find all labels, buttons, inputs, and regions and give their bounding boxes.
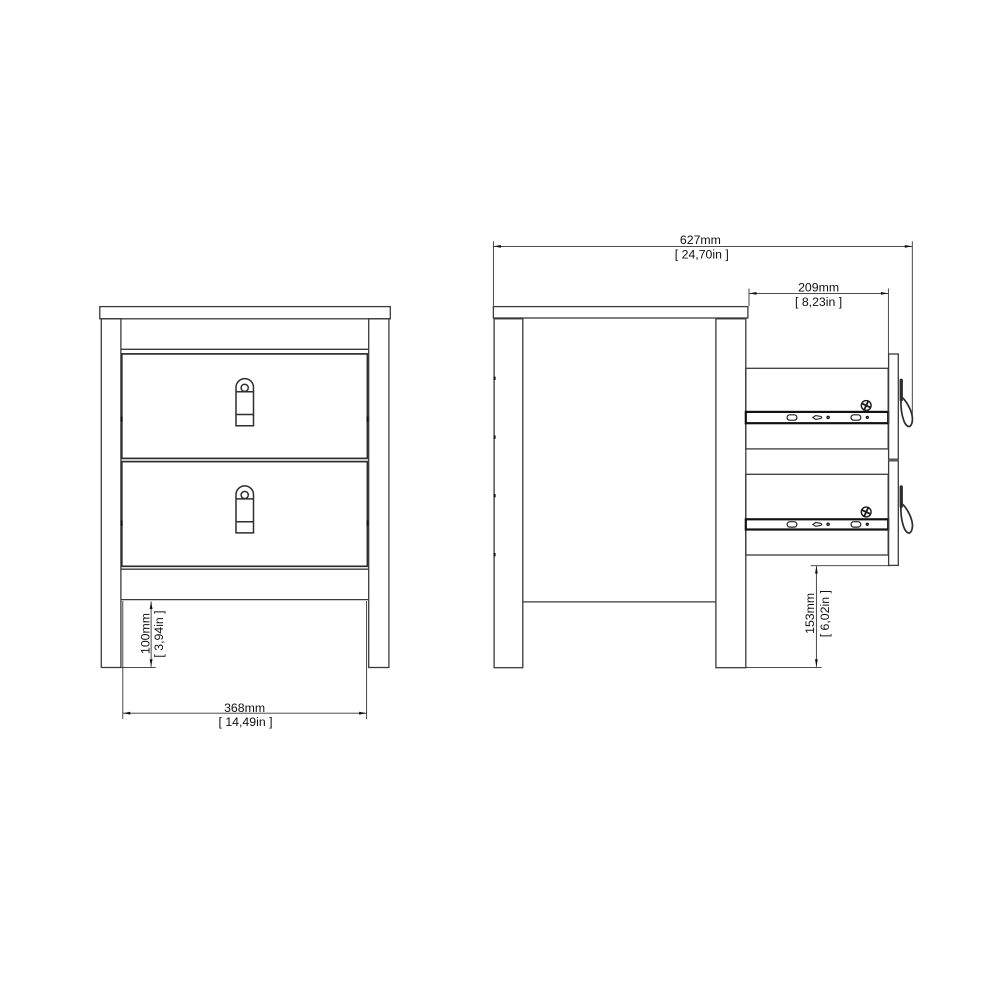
svg-text:[ 14,49in ]: [ 14,49in ]: [218, 715, 272, 729]
svg-text:[ 6,02in ]: [ 6,02in ]: [818, 590, 832, 637]
svg-text:627mm: 627mm: [680, 233, 721, 247]
svg-text:209mm: 209mm: [798, 281, 839, 295]
svg-text:100mm: 100mm: [138, 613, 152, 654]
svg-text:[ 24,70in ]: [ 24,70in ]: [675, 247, 729, 261]
svg-text:368mm: 368mm: [224, 701, 265, 715]
svg-text:[ 8,23in ]: [ 8,23in ]: [795, 295, 842, 309]
svg-text:153mm: 153mm: [803, 593, 817, 634]
svg-text:[ 3,94in ]: [ 3,94in ]: [152, 610, 166, 657]
